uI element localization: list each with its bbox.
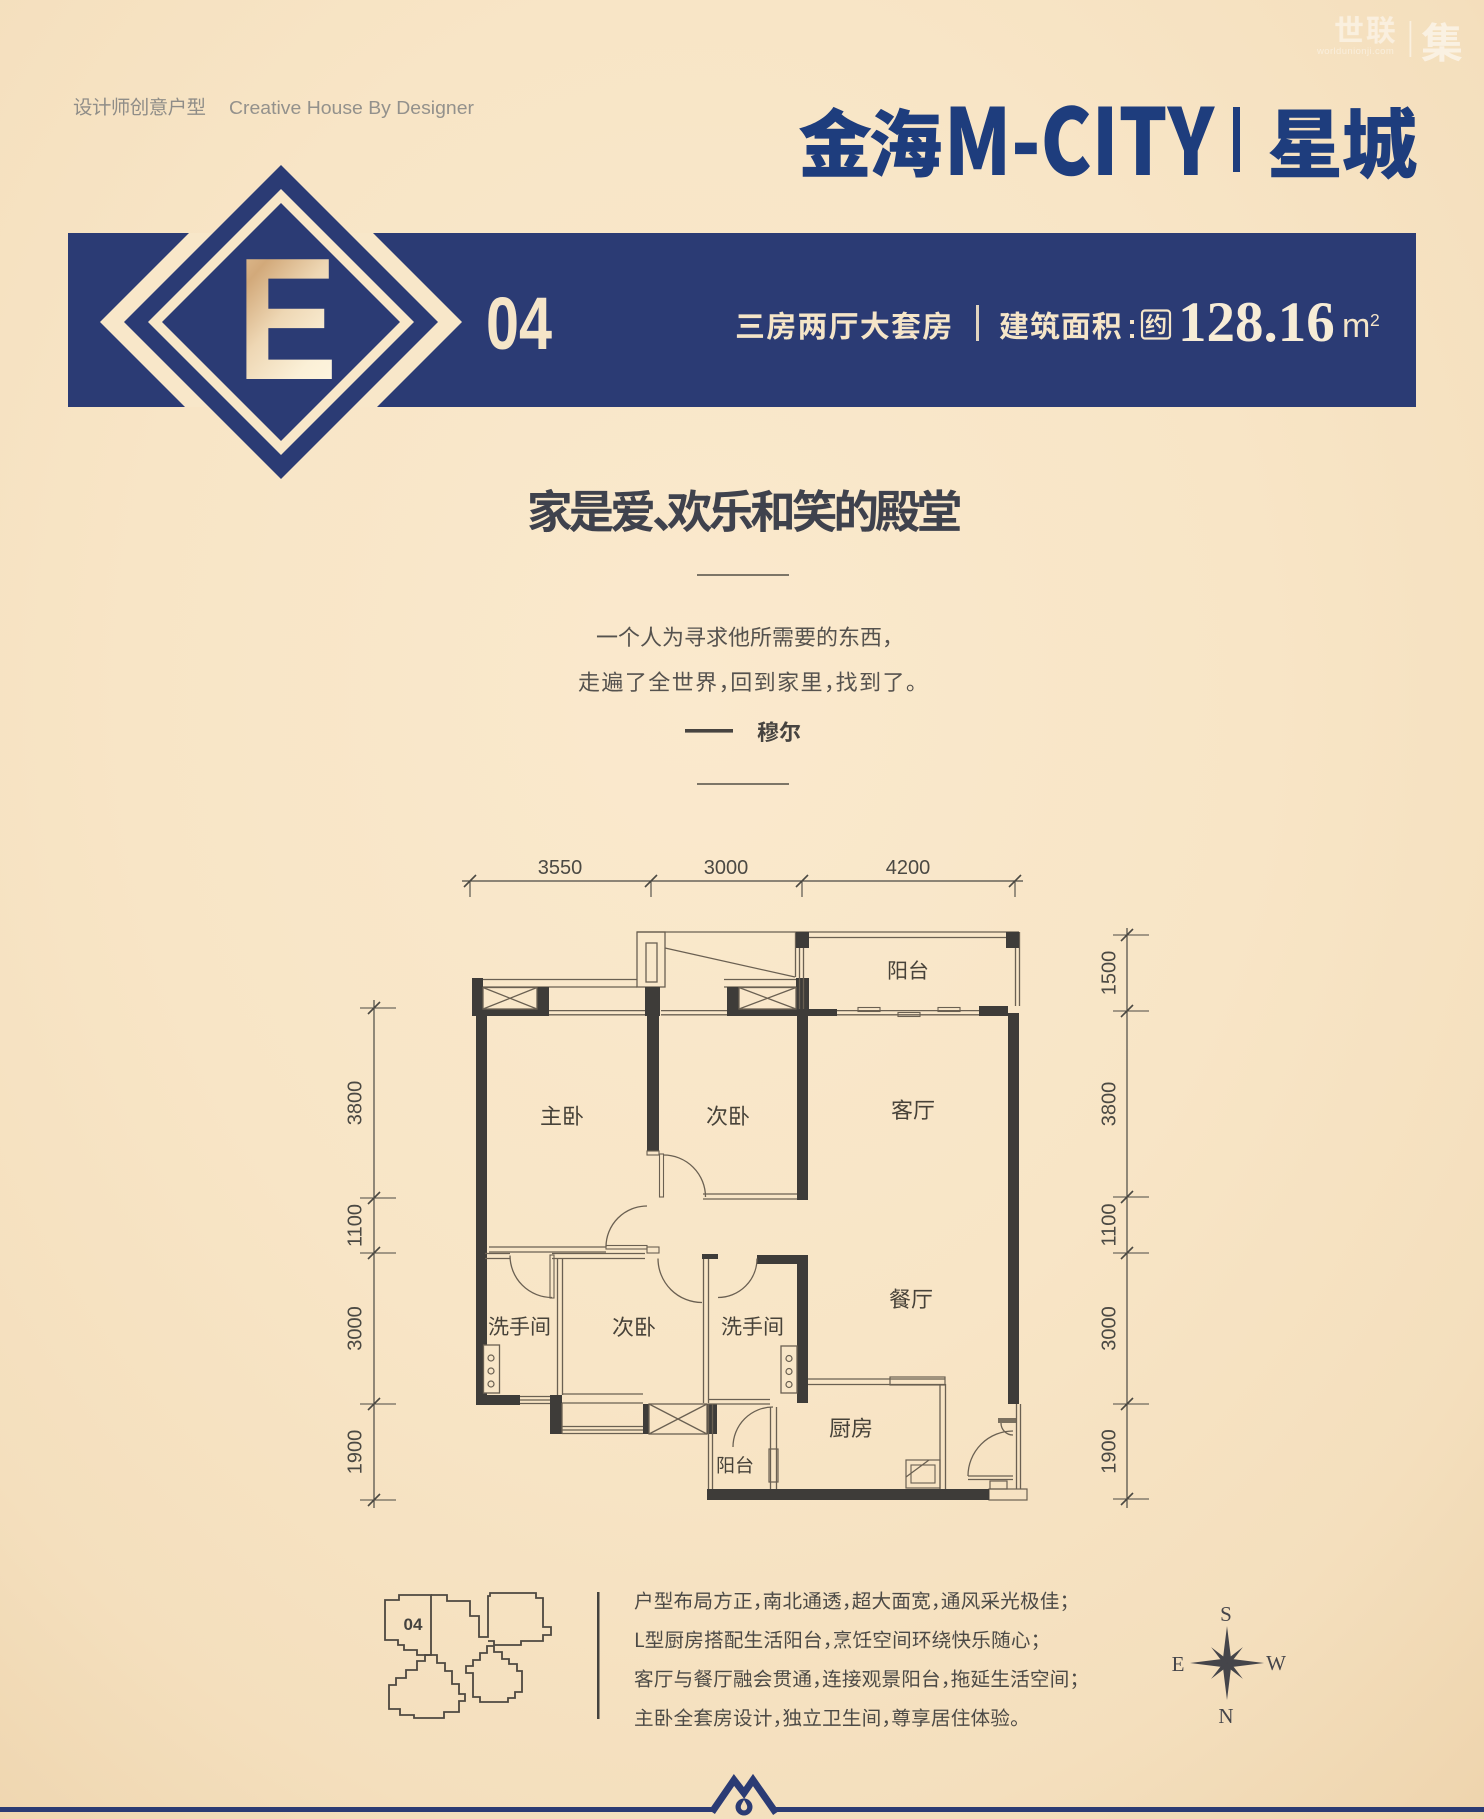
svg-text:3000: 3000: [1098, 1306, 1120, 1351]
svg-text:3550: 3550: [538, 857, 583, 879]
svg-text:S: S: [1220, 1602, 1232, 1626]
svg-text:04: 04: [404, 1615, 423, 1634]
svg-text:W: W: [1266, 1651, 1286, 1675]
svg-text:1900: 1900: [344, 1430, 366, 1475]
svg-text:Creative House By Designer: Creative House By Designer: [229, 97, 474, 118]
svg-text:3000: 3000: [344, 1306, 366, 1351]
svg-text:worldunionji.com: worldunionji.com: [1316, 46, 1394, 57]
svg-text:E: E: [236, 221, 338, 416]
svg-text:3800: 3800: [344, 1081, 366, 1126]
svg-text:1900: 1900: [1098, 1429, 1120, 1474]
svg-text:E: E: [1172, 1652, 1185, 1676]
svg-text:1100: 1100: [1098, 1203, 1120, 1246]
svg-text:1100: 1100: [344, 1204, 366, 1247]
svg-text:04: 04: [486, 282, 552, 365]
svg-text:m: m: [1342, 307, 1370, 345]
svg-text:4200: 4200: [886, 857, 931, 879]
svg-text:128.16: 128.16: [1178, 291, 1335, 354]
svg-text:3000: 3000: [704, 857, 749, 879]
svg-text:1500: 1500: [1098, 951, 1120, 996]
svg-text:2: 2: [1370, 310, 1380, 330]
svg-text:3800: 3800: [1098, 1082, 1120, 1127]
svg-text:N: N: [1218, 1704, 1233, 1728]
